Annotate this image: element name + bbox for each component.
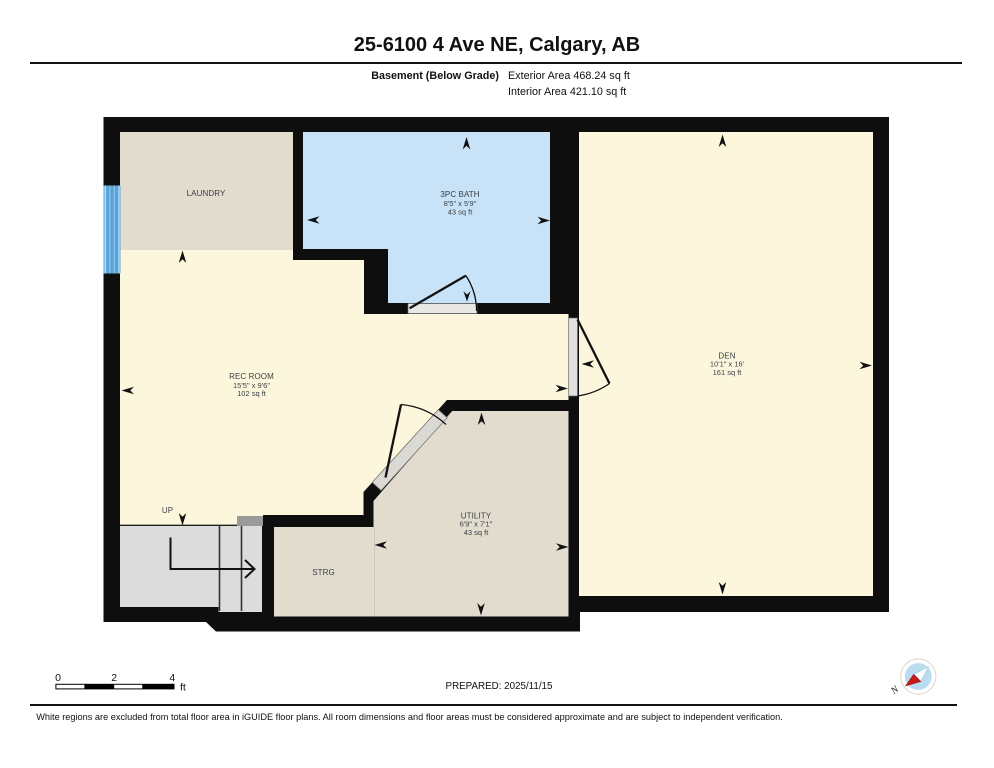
svg-text:LAUNDRY: LAUNDRY (187, 189, 226, 198)
svg-text:REC ROOM: REC ROOM (229, 372, 274, 381)
svg-text:43 sq ft: 43 sq ft (464, 528, 490, 537)
svg-text:161 sq ft: 161 sq ft (713, 368, 743, 377)
svg-text:102 sq ft: 102 sq ft (237, 389, 267, 398)
svg-text:2: 2 (111, 672, 117, 684)
svg-text:PREPARED: 2025/11/15: PREPARED: 2025/11/15 (446, 681, 553, 692)
svg-text:3PC BATH: 3PC BATH (440, 190, 479, 199)
svg-text:4: 4 (169, 672, 175, 684)
svg-text:ft: ft (180, 682, 186, 694)
svg-text:N: N (888, 683, 902, 697)
svg-text:43 sq ft: 43 sq ft (448, 208, 474, 217)
svg-text:0: 0 (55, 672, 61, 684)
svg-text:STRG: STRG (312, 568, 335, 577)
svg-text:UP: UP (162, 506, 173, 515)
